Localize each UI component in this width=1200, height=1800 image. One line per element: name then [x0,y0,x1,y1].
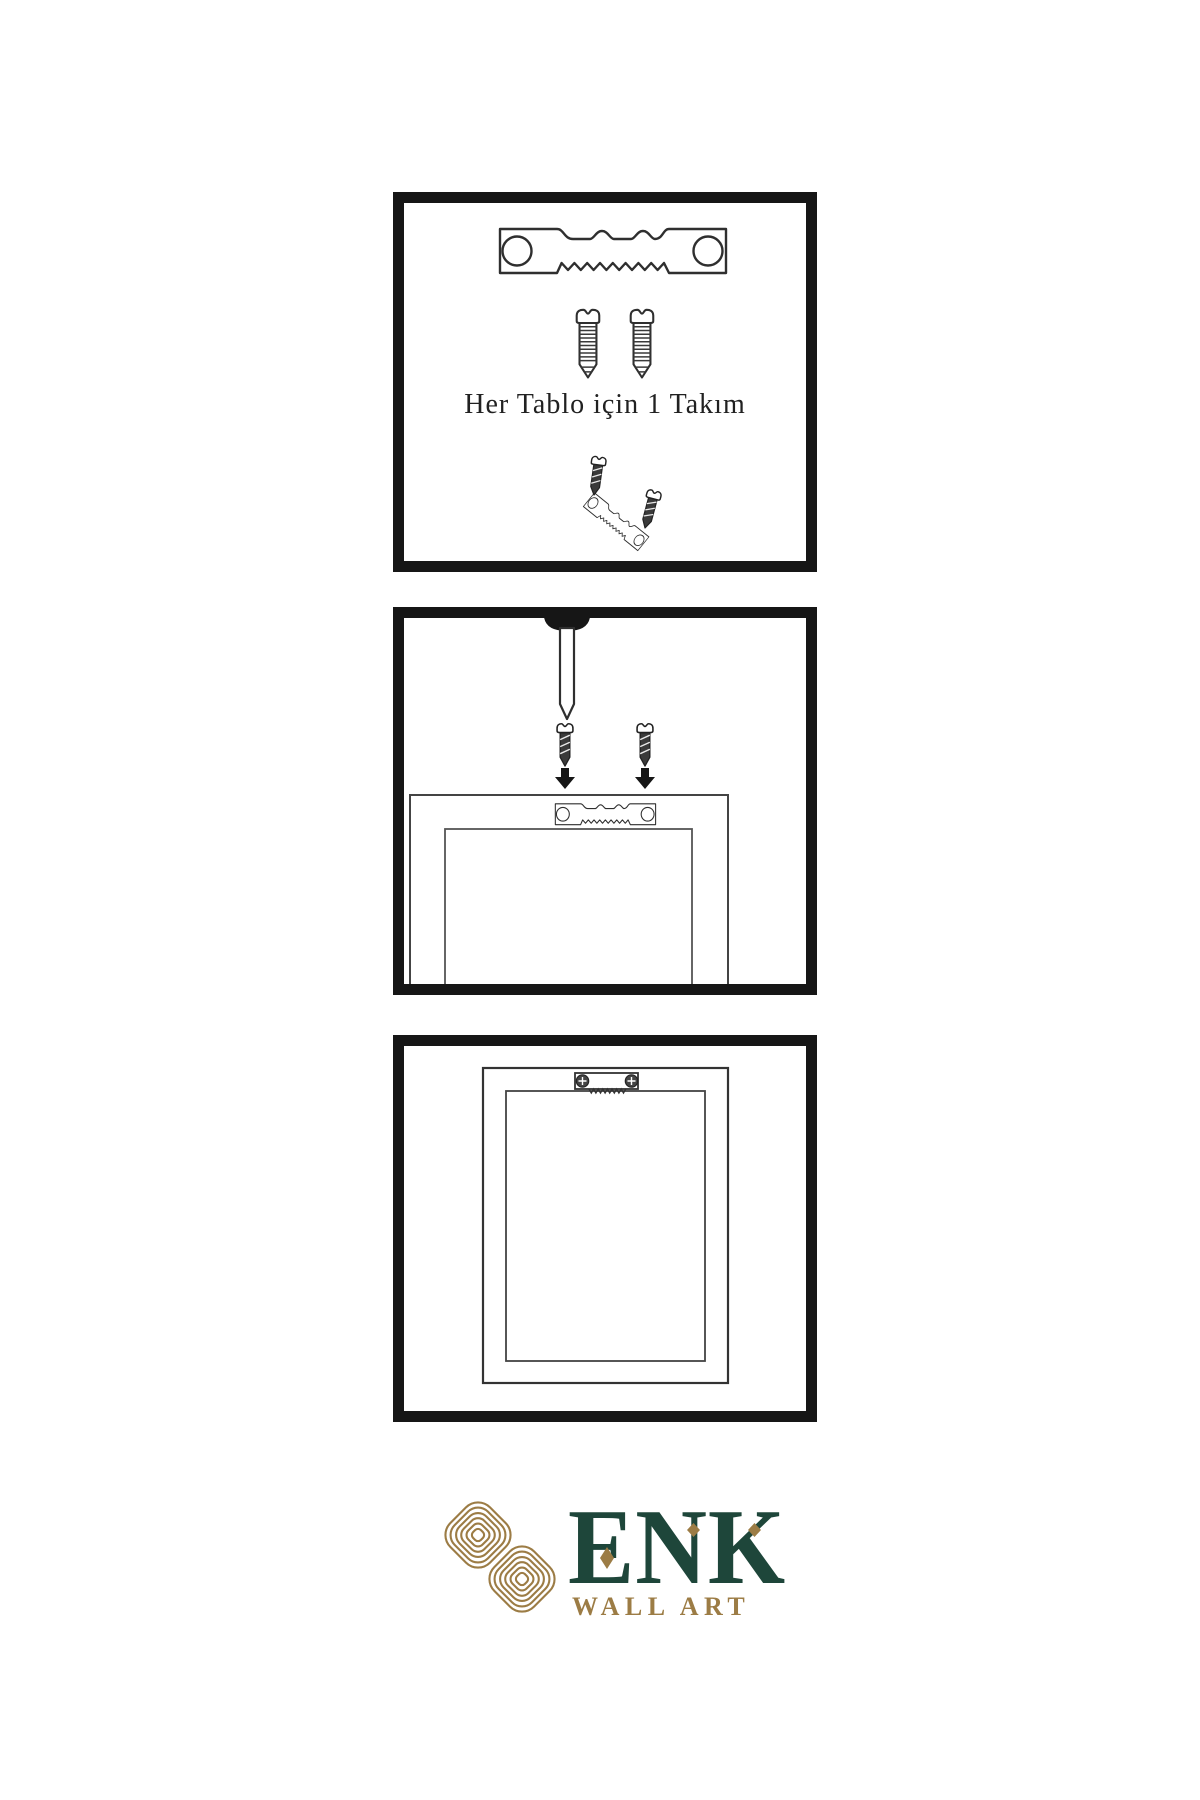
threaded-screw-icon [631,310,654,378]
step3-drawing [404,1046,806,1411]
step1-drawing [404,203,806,561]
screw-driving-into-hanger-icon [583,456,662,551]
frame-back-icon [483,1068,728,1383]
down-arrow-icon [555,768,575,789]
brand-subtitle: WALL ART [572,1594,750,1620]
brand-name: ENK [568,1494,786,1602]
step1-panel: Her Tablo için 1 Takım [393,192,817,572]
step2-drawing [404,618,806,984]
dark-screw-icon [557,724,573,766]
knot-logo-icon [438,1493,563,1620]
step3-panel [393,1035,817,1422]
sawtooth-hanger-icon [500,229,726,273]
dark-screw-icon [637,724,653,766]
step1-caption: Her Tablo için 1 Takım [404,389,806,421]
wall-nail-icon [544,618,590,719]
down-arrow-icon [635,768,655,789]
step2-panel [393,607,817,995]
threaded-screw-icon [577,310,600,378]
instruction-sheet: { "colors": { "background": "#ffffff", "… [0,0,1200,1800]
brand-logo: ENK WALL ART [438,1493,798,1643]
